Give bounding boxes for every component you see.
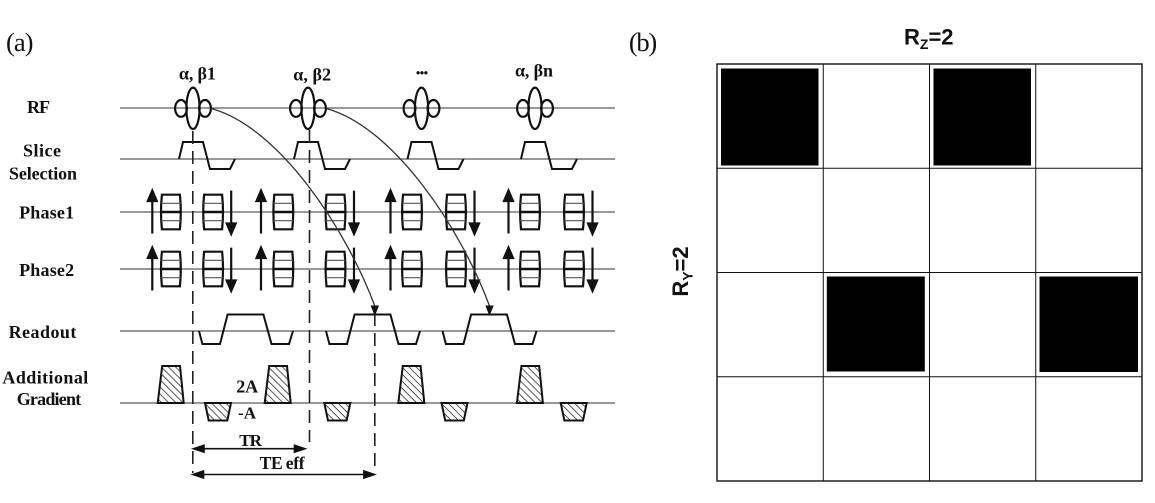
svg-text:TR: TR (239, 431, 262, 450)
svg-text:TE eff: TE eff (260, 453, 305, 473)
svg-text:α, β1: α, β1 (179, 64, 216, 84)
svg-text:Phase1: Phase1 (19, 203, 74, 223)
svg-text:RZ=2: RZ=2 (904, 25, 954, 53)
svg-text:(a): (a) (6, 27, 34, 57)
svg-text:α, βn: α, βn (515, 61, 553, 81)
svg-text:2A: 2A (236, 376, 258, 396)
svg-text:Additional: Additional (2, 367, 88, 387)
svg-text:...: ... (416, 56, 429, 80)
svg-text:α, β2: α, β2 (293, 65, 331, 85)
svg-text:RY=2: RY=2 (668, 246, 696, 296)
svg-text:RF: RF (27, 97, 50, 117)
svg-text:Phase2: Phase2 (19, 260, 74, 280)
svg-text:(b): (b) (629, 27, 657, 57)
svg-text:Slice: Slice (23, 140, 61, 160)
svg-text:Readout: Readout (9, 322, 77, 342)
svg-text:Gradient: Gradient (17, 389, 82, 409)
svg-text:Selection: Selection (9, 163, 77, 183)
svg-text:-A: -A (238, 404, 257, 423)
